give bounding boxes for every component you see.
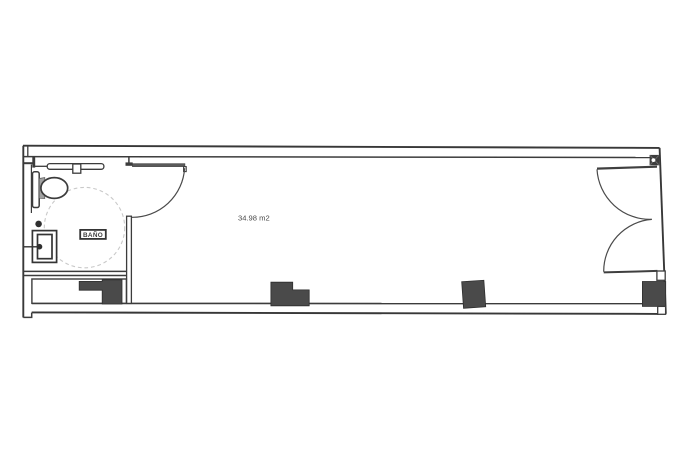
svg-text:34.98 m2: 34.98 m2: [238, 214, 270, 223]
svg-text:BAÑO: BAÑO: [83, 230, 103, 239]
